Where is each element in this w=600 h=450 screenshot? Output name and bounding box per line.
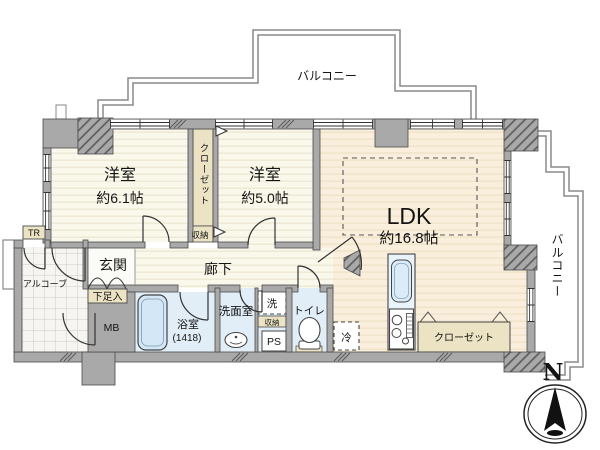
label-toilet: トイレ [293,305,325,317]
label-bedroom1-size: 約6.1帖 [96,190,143,206]
floor-plan-drawing: バルコニー バルコニー 洋室 約6.1帖 洋室 約5.0帖 LDK 約16.8帖… [0,0,600,450]
compass-north-label: N [542,359,563,386]
alcove-left-step-line [3,240,14,289]
label-bedroom1-name: 洋室 [104,166,136,184]
label-storage-below-closet: 収納 [191,230,208,240]
label-trunk-room: TR [28,228,40,238]
label-closet-bedrooms: クローゼット [198,143,210,206]
label-bedroom2-size: 約5.0帖 [241,190,288,206]
label-bathroom-size: (1418) [173,333,202,344]
label-entrance: 玄関 [99,257,127,273]
label-bedroom2-name: 洋室 [249,166,281,184]
label-bathroom-name: 浴室 [177,317,199,331]
label-storage-washroom: 収納 [265,317,280,327]
label-balcony-right: バルコニー [550,233,564,298]
washbasin [225,333,247,348]
balcony-top-outline [56,30,476,119]
label-shoe-cabinet: 下足入 [93,291,123,303]
label-closet-ldk: クローゼット [434,332,494,344]
floor-plan-page: バルコニー バルコニー 洋室 約6.1帖 洋室 約5.0帖 LDK 約16.8帖… [0,0,600,450]
compass-needle [544,387,566,431]
label-washing-machine: 洗 [267,298,278,310]
room-bedroom2-floor [218,129,313,248]
label-balcony-top: バルコニー [297,69,357,83]
label-ldk-name: LDK [387,203,432,229]
label-ldk-size: 約16.8帖 [379,230,438,247]
bathtub [138,295,167,350]
label-washroom: 洗面室 [219,304,254,318]
stove [390,309,414,349]
label-corridor: 廊下 [204,261,232,277]
label-alcove: アルコーブ [23,278,67,289]
label-pipe-space: PS [267,336,281,348]
label-refrigerator: 冷 [341,331,352,344]
label-meter-box: MB [104,322,120,334]
room-corridor-floor [135,248,333,288]
